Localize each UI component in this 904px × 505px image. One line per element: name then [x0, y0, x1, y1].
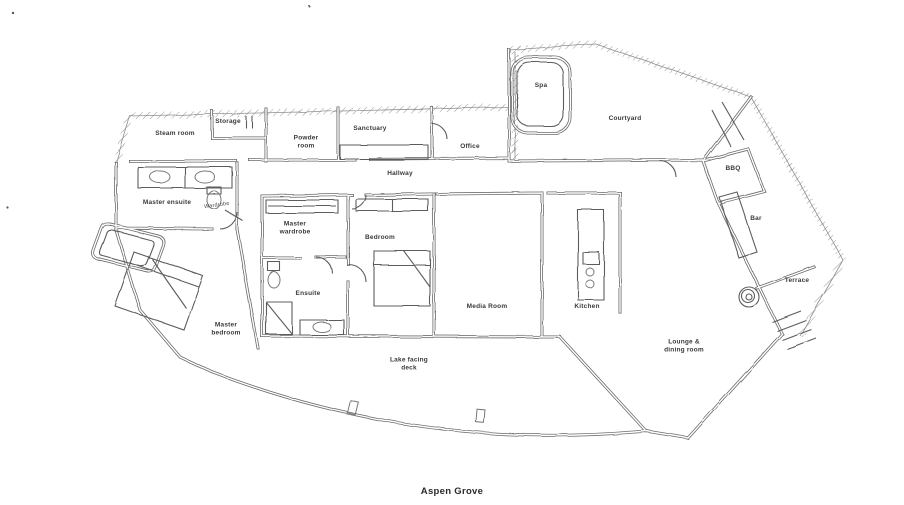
- room-label-storage: Storage: [215, 118, 241, 126]
- room-label-hallway: Hallway: [387, 170, 413, 178]
- room-label-sanctuary: Sanctuary: [353, 125, 386, 133]
- room-label-lounge-dining: Lounge & dining room: [664, 339, 704, 356]
- room-label-office: Office: [460, 143, 480, 151]
- room-label-lake-deck: Lake facing deck: [390, 357, 428, 374]
- room-label-ensuite: Ensuite: [296, 290, 321, 298]
- room-label-powder-room: Powder room: [294, 135, 319, 152]
- room-label-courtyard: Courtyard: [609, 115, 642, 123]
- room-label-bar: Bar: [750, 215, 761, 223]
- room-label-bbq: BBQ: [725, 165, 740, 173]
- room-label-master-bedroom: Master bedroom: [211, 322, 240, 339]
- room-label-steam-room: Steam room: [155, 130, 195, 138]
- exterior-hatched-walls: [116, 44, 843, 336]
- room-label-kitchen: Kitchen: [574, 303, 599, 311]
- room-label-terrace: Terrace: [785, 277, 809, 285]
- room-label-bedroom: Bedroom: [365, 234, 395, 242]
- paper-specks: [6, 5, 310, 208]
- floor-plan-page: Steam room Storage Powder room Sanctuary…: [0, 0, 904, 505]
- room-label-master-ensuite: Master ensuite: [143, 199, 191, 207]
- room-label-spa: Spa: [535, 82, 548, 90]
- room-label-master-wardrobe: Master wardrobe: [280, 221, 311, 238]
- room-label-media-room: Media Room: [467, 303, 508, 311]
- plan-title: Aspen Grove: [421, 486, 483, 498]
- floor-plan-drawing: [0, 0, 904, 505]
